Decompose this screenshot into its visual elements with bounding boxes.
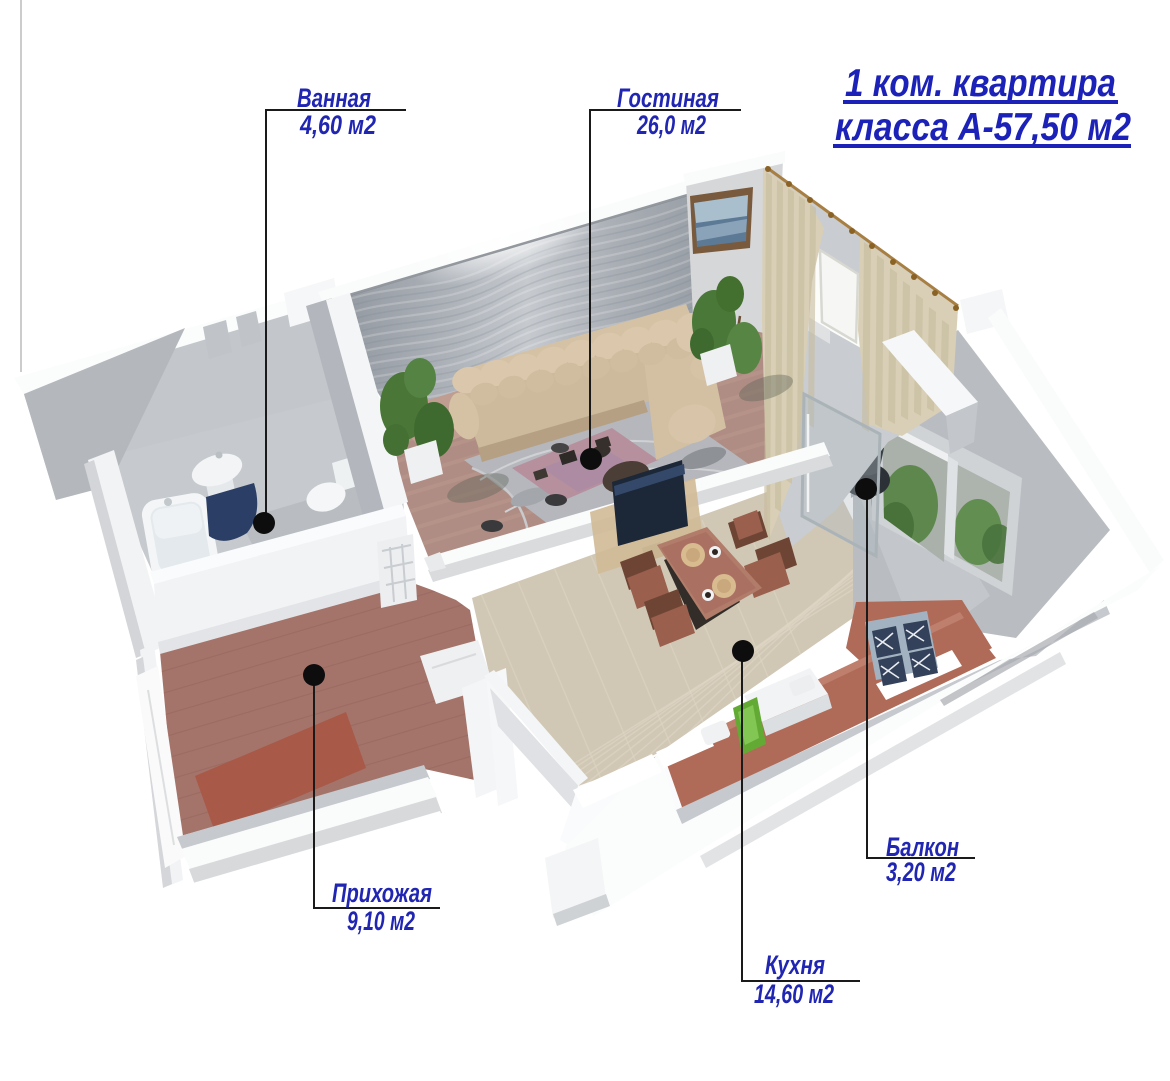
svg-text:26,0 м2: 26,0 м2 <box>636 110 706 140</box>
svg-text:1 ком. квартира: 1 ком. квартира <box>845 62 1116 105</box>
svg-text:Кухня: Кухня <box>765 950 825 980</box>
svg-text:4,60 м2: 4,60 м2 <box>299 110 376 140</box>
svg-text:14,60 м2: 14,60 м2 <box>754 979 834 1009</box>
svg-text:класса А-57,50 м2: класса А-57,50 м2 <box>835 106 1131 149</box>
svg-text:Прихожая: Прихожая <box>332 878 432 908</box>
svg-text:3,20 м2: 3,20 м2 <box>886 857 956 887</box>
svg-text:9,10 м2: 9,10 м2 <box>347 906 415 936</box>
svg-text:Ванная: Ванная <box>297 83 371 113</box>
svg-text:Гостиная: Гостиная <box>617 83 719 113</box>
